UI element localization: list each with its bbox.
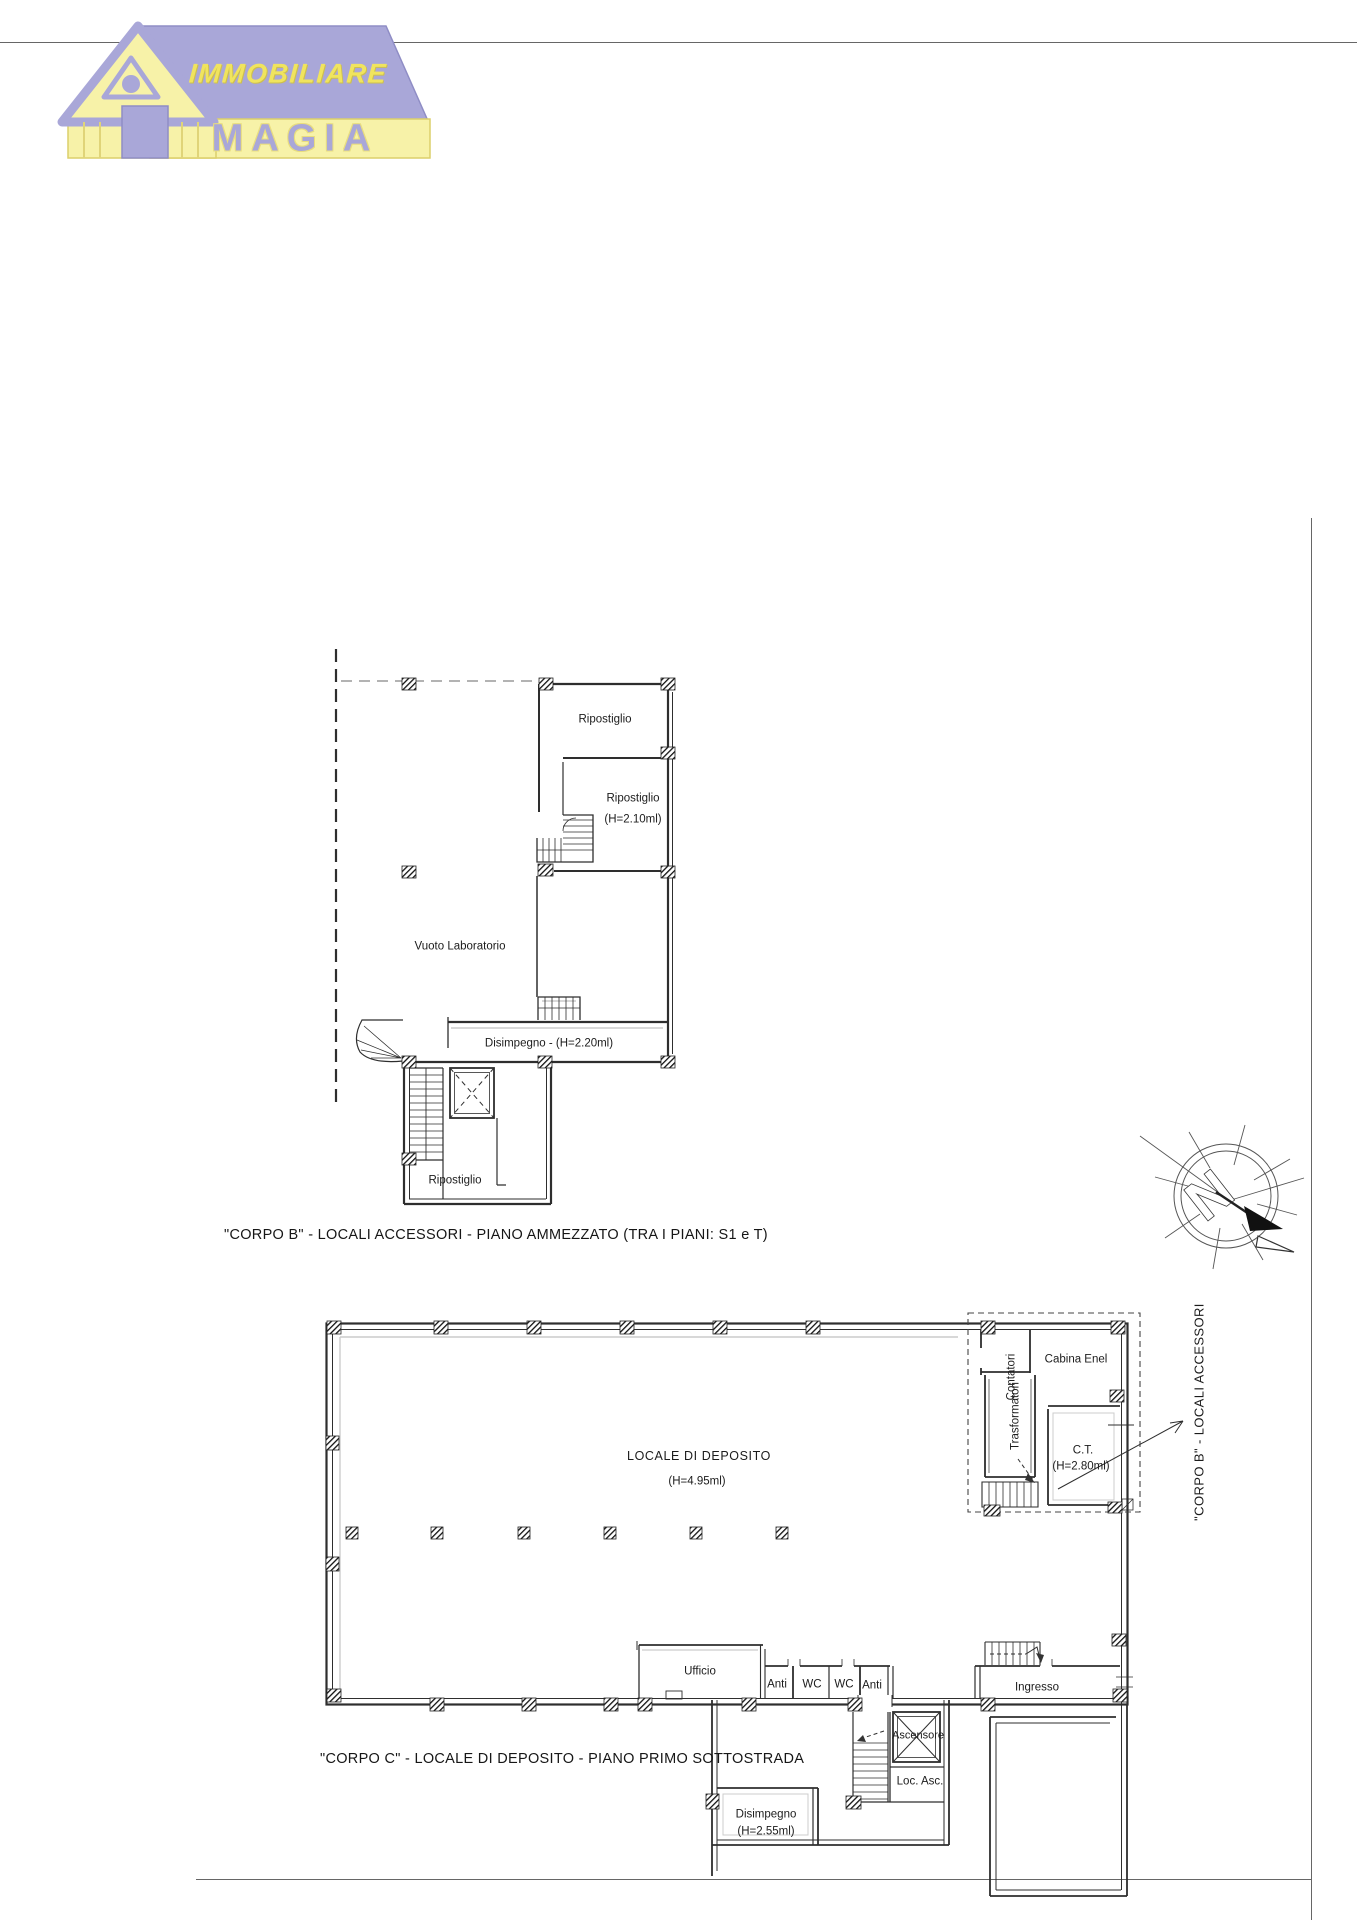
room-label-wc-left: WC bbox=[802, 1679, 821, 1691]
caption-plan-ammezzato: "CORPO B" - LOCALI ACCESSORI - PIANO AMM… bbox=[224, 1227, 768, 1243]
room-label-ripostiglio-mid: Ripostiglio bbox=[606, 793, 659, 805]
logo-magia: MAGIA bbox=[212, 118, 379, 161]
floor-plan-drawing: N bbox=[0, 0, 1357, 1920]
north-letter: N bbox=[1174, 1158, 1245, 1233]
room-label-wc-right: WC bbox=[834, 1679, 853, 1691]
room-label-ascensore: Ascensore bbox=[892, 1731, 944, 1742]
room-label-loc-asc: Loc. Asc. bbox=[897, 1776, 944, 1788]
compass: N bbox=[1140, 1125, 1304, 1269]
room-label-disimpegno-b-height: (H=2.55ml) bbox=[737, 1826, 794, 1838]
sheet-frame bbox=[0, 43, 1357, 1920]
room-label-locale-height: (H=4.95ml) bbox=[668, 1476, 725, 1488]
fan-stair bbox=[356, 1020, 403, 1062]
room-label-ripostiglio-bottom: Ripostiglio bbox=[428, 1175, 481, 1187]
room-label-ripostiglio-mid-height: (H=2.10ml) bbox=[604, 814, 661, 826]
door-icon bbox=[122, 106, 168, 158]
room-label-disimpegno-b: Disimpegno bbox=[736, 1809, 797, 1821]
room-label-disimpegno-a: Disimpegno - (H=2.20ml) bbox=[485, 1038, 613, 1050]
caption-plan-sottostrada: "CORPO C" - LOCALE DI DEPOSITO - PIANO P… bbox=[320, 1751, 804, 1767]
room-label-vuoto-laboratorio: Vuoto Laboratorio bbox=[414, 941, 505, 953]
side-label-corpo-b: "CORPO B" - LOCALI ACCESSORI bbox=[1193, 1303, 1206, 1521]
floor-plan-sheet: N IMMOBILIARE MAGIA Ripostiglio Ripostig… bbox=[0, 0, 1357, 1920]
door-leaf bbox=[666, 1691, 682, 1699]
plan-ammezzato-walls bbox=[336, 649, 675, 1204]
room-label-anti-left: Anti bbox=[767, 1679, 787, 1691]
logo-immobiliare: IMMOBILIARE bbox=[188, 59, 388, 90]
plan-ammezzato-stairs bbox=[356, 815, 593, 1160]
room-label-cabina-enel: Cabina Enel bbox=[1045, 1354, 1108, 1366]
external-court bbox=[990, 1699, 1127, 1896]
room-label-locale-deposito: LOCALE DI DEPOSITO bbox=[627, 1450, 771, 1463]
room-label-ufficio: Ufficio bbox=[684, 1666, 716, 1678]
room-label-trasformatori: Trasformatori bbox=[1010, 1382, 1022, 1450]
room-label-ingresso: Ingresso bbox=[1015, 1682, 1059, 1694]
electrical-rooms bbox=[968, 1313, 1183, 1512]
room-label-ct-height: (H=2.80ml) bbox=[1052, 1461, 1109, 1473]
room-label-ripostiglio-top: Ripostiglio bbox=[578, 714, 631, 726]
plan-ammezzato-elevator-shaft bbox=[450, 1068, 494, 1118]
room-label-ct: C.T. bbox=[1073, 1445, 1093, 1457]
room-label-anti-right: Anti bbox=[862, 1680, 882, 1692]
